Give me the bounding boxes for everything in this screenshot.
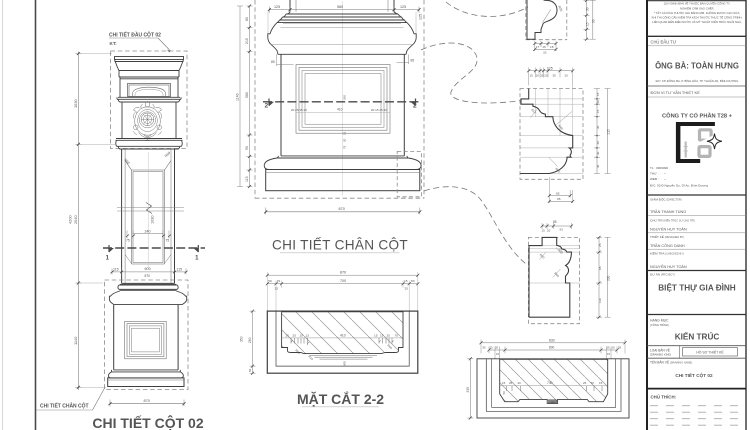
svg-text:50: 50 xyxy=(268,279,272,283)
svg-text:25: 25 xyxy=(583,381,587,385)
svg-text:4200: 4200 xyxy=(68,215,73,224)
svg-text:HẠNG MỤC: HẠNG MỤC xyxy=(650,319,669,323)
svg-text:85: 85 xyxy=(411,59,415,63)
svg-text:75: 75 xyxy=(166,239,170,243)
svg-text:20: 20 xyxy=(596,100,600,104)
svg-text:18: 18 xyxy=(550,45,554,49)
svg-text:115: 115 xyxy=(113,268,119,272)
svg-text:870: 870 xyxy=(340,270,346,274)
svg-text:THIẾT KẾ (DESIGNED BY): THIẾT KẾ (DESIGNED BY) xyxy=(650,234,684,239)
svg-text:1140: 1140 xyxy=(73,336,78,345)
svg-text:700: 700 xyxy=(340,279,346,283)
svg-text:125: 125 xyxy=(419,14,423,20)
svg-text:R60: R60 xyxy=(123,158,130,165)
svg-text:ÔNG BÀ: TOÀN HƯNG: ÔNG BÀ: TOÀN HƯNG xyxy=(655,62,739,71)
svg-text:50: 50 xyxy=(248,368,252,372)
svg-text:125: 125 xyxy=(274,5,280,9)
svg-text:80: 80 xyxy=(245,17,249,21)
svg-text:R60: R60 xyxy=(554,167,561,174)
svg-text:NGHIÊM CẤM SAO CHÉP,: NGHIÊM CẤM SAO CHÉP, xyxy=(680,5,714,10)
svg-text:CHỦ ĐẦU TƯ: CHỦ ĐẦU TƯ xyxy=(651,40,677,45)
svg-text:85: 85 xyxy=(271,60,275,64)
svg-text:870: 870 xyxy=(144,399,150,403)
svg-text:25: 25 xyxy=(275,287,279,291)
svg-text:TÊN BẢN VẼ (DRAWING NAME): TÊN BẢN VẼ (DRAWING NAME) xyxy=(650,360,692,365)
svg-text:THƯ :: THƯ : xyxy=(650,172,659,176)
svg-text:20: 20 xyxy=(612,346,616,350)
svg-text:20: 20 xyxy=(343,138,347,142)
svg-text:20: 20 xyxy=(547,229,551,233)
svg-text:KIỂM TRA (CHECKED BY): KIỂM TRA (CHECKED BY) xyxy=(650,251,684,256)
svg-text:15: 15 xyxy=(300,334,304,338)
svg-text:QUY ĐỊNH BẢN VẼ THUỘC BẢN QUYỀ: QUY ĐỊNH BẢN VẼ THUỘC BẢN QUYỀN CÔNG TY, xyxy=(664,1,731,6)
svg-text:30: 30 xyxy=(596,151,600,155)
svg-text:20 25 15 20: 20 25 15 20 xyxy=(291,108,307,112)
svg-text:215: 215 xyxy=(245,38,249,44)
svg-text:800: 800 xyxy=(549,346,555,350)
svg-text:1140: 1140 xyxy=(236,93,240,101)
svg-text:55: 55 xyxy=(483,346,487,350)
svg-text:15: 15 xyxy=(496,352,500,356)
svg-text:KIẾN TRÚC: KIẾN TRÚC xyxy=(675,331,720,342)
svg-text:25: 25 xyxy=(598,243,602,247)
svg-text:330: 330 xyxy=(466,387,470,393)
svg-text:75: 75 xyxy=(126,239,130,243)
svg-text:1: 1 xyxy=(106,255,110,262)
svg-text:580: 580 xyxy=(245,92,249,98)
svg-text:15: 15 xyxy=(540,74,544,78)
svg-text:13: 13 xyxy=(306,334,310,338)
svg-text:LIÊN QUAN ĐẾN ĐIỆN NƯỚC VÀ MỸ: LIÊN QUAN ĐẾN ĐIỆN NƯỚC VÀ MỸ THUẬT KIẾN… xyxy=(652,19,742,24)
svg-text:740: 740 xyxy=(547,381,553,385)
svg-text:ĐƠN VỊ TƯ VẤN THIẾT KẾ: ĐƠN VỊ TƯ VẤN THIẾT KẾ xyxy=(651,90,701,95)
svg-text:50: 50 xyxy=(502,391,506,395)
svg-text:32: 32 xyxy=(543,51,547,55)
svg-text:DỰ ÁN (PROJECT): DỰ ÁN (PROJECT) xyxy=(650,273,675,277)
svg-text:410: 410 xyxy=(340,333,346,337)
svg-text:65: 65 xyxy=(598,266,602,270)
svg-text:R35: R35 xyxy=(557,5,563,12)
svg-text:53: 53 xyxy=(560,228,564,232)
svg-text:20: 20 xyxy=(565,74,569,78)
svg-text:–: – xyxy=(664,177,666,181)
svg-text:20: 20 xyxy=(518,381,522,385)
svg-text:215: 215 xyxy=(606,129,610,135)
svg-text:15: 15 xyxy=(596,92,600,96)
svg-text:870: 870 xyxy=(339,207,345,211)
svg-text:WEB :: WEB : xyxy=(650,177,659,181)
svg-text:CHI TIẾT ĐẦU CỘT 02: CHI TIẾT ĐẦU CỘT 02 xyxy=(109,31,161,39)
svg-text:CHI TIẾT CỘT 02: CHI TIẾT CỘT 02 xyxy=(675,371,713,378)
svg-text:CHỦ TRÌ (KIẾN TRÚC SƯ CHỦ TRÌ): CHỦ TRÌ (KIẾN TRÚC SƯ CHỦ TRÌ) xyxy=(650,217,695,222)
svg-text:20: 20 xyxy=(536,74,540,78)
svg-text:15: 15 xyxy=(599,381,603,385)
svg-text:30: 30 xyxy=(585,7,589,11)
svg-text:20 15 25 20: 20 15 25 20 xyxy=(371,108,387,112)
svg-text:CHÚ THÍCH:: CHÚ THÍCH: xyxy=(651,395,677,400)
svg-text:35: 35 xyxy=(553,74,557,78)
svg-text:15: 15 xyxy=(502,381,506,385)
svg-text:200: 200 xyxy=(606,275,610,281)
svg-text:CHI TIẾT CHÂN CỘT: CHI TIẾT CHÂN CỘT xyxy=(40,402,89,410)
svg-text:70: 70 xyxy=(395,334,399,338)
svg-text:R17: R17 xyxy=(530,108,537,115)
svg-text:15: 15 xyxy=(596,109,600,113)
svg-text:350: 350 xyxy=(240,336,244,342)
svg-text:CÔNG TY CỔ PHẦN T28 +: CÔNG TY CỔ PHẦN T28 + xyxy=(662,112,733,120)
svg-text:15: 15 xyxy=(374,334,378,338)
svg-text:600: 600 xyxy=(343,361,347,366)
svg-text:40: 40 xyxy=(596,141,600,145)
svg-text:830: 830 xyxy=(549,338,555,342)
svg-text:R60: R60 xyxy=(553,271,560,278)
svg-text:–: – xyxy=(664,172,666,176)
svg-text:2040: 2040 xyxy=(73,215,78,224)
svg-text:580: 580 xyxy=(337,5,343,9)
svg-text:CHI TIẾT CỘT 02: CHI TIẾT CỘT 02 xyxy=(92,414,203,430)
svg-text:15: 15 xyxy=(542,229,546,233)
svg-text:15: 15 xyxy=(343,131,347,135)
svg-text:1030: 1030 xyxy=(151,216,155,224)
svg-text:125: 125 xyxy=(547,66,553,70)
svg-text:240: 240 xyxy=(145,230,151,234)
svg-text:15: 15 xyxy=(530,74,534,78)
svg-text:(CÔNG TRÌNH): (CÔNG TRÌNH) xyxy=(650,322,669,327)
svg-text:17: 17 xyxy=(536,45,540,49)
svg-text:25: 25 xyxy=(509,381,513,385)
svg-text:90: 90 xyxy=(245,146,249,150)
svg-text:LOẠI BẢN VẼ: LOẠI BẢN VẼ xyxy=(650,348,670,353)
svg-text:20: 20 xyxy=(490,346,494,350)
svg-text:25: 25 xyxy=(387,334,391,338)
svg-text:15: 15 xyxy=(607,352,611,356)
svg-text:15: 15 xyxy=(277,279,281,283)
svg-text:410: 410 xyxy=(337,108,343,112)
svg-text:125: 125 xyxy=(400,5,406,9)
svg-text:260: 260 xyxy=(343,95,347,100)
svg-text:55: 55 xyxy=(618,346,622,350)
svg-text:70: 70 xyxy=(591,381,595,385)
svg-text:85: 85 xyxy=(556,191,560,195)
svg-text:HỒ SƠ THIẾT KẾ: HỒ SƠ THIẾT KẾ xyxy=(696,350,724,355)
svg-text:CHI TIẾT CHÂN CỘT: CHI TIẾT CHÂN CỘT xyxy=(272,238,408,253)
svg-text:85: 85 xyxy=(553,220,557,224)
svg-text:20: 20 xyxy=(286,334,290,338)
svg-text:115: 115 xyxy=(245,176,249,182)
svg-text:15: 15 xyxy=(542,45,546,49)
svg-text:25: 25 xyxy=(405,287,409,291)
svg-text:608: 608 xyxy=(551,401,556,404)
svg-text:Đ/C: 50 Đ.Nguyễn Du, Dĩ An, Bì: Đ/C: 50 Đ.Nguyễn Du, Dĩ An, Bình Dương xyxy=(650,183,708,188)
svg-text:1030: 1030 xyxy=(73,99,78,108)
svg-text:95: 95 xyxy=(557,197,561,201)
svg-text:15: 15 xyxy=(380,334,384,338)
svg-text:30: 30 xyxy=(596,125,600,129)
svg-text:TL : 0909090: TL : 0909090 xyxy=(650,166,668,170)
svg-text:1: 1 xyxy=(195,255,199,262)
svg-text:BIỆT THỰ GIA ĐÌNH: BIỆT THỰ GIA ĐÌNH xyxy=(658,282,736,293)
svg-text:KT:: KT: xyxy=(110,41,118,46)
svg-text:90: 90 xyxy=(592,19,596,23)
svg-text:25: 25 xyxy=(607,346,611,350)
svg-text:25: 25 xyxy=(495,346,499,350)
svg-text:KHI THI CÔNG CẦN KIỂM TRA KÍCH: KHI THI CÔNG CẦN KIỂM TRA KÍCH THƯỚC THỰ… xyxy=(652,15,743,20)
svg-text:TRẦN CÔNG DANH: TRẦN CÔNG DANH xyxy=(650,243,685,248)
svg-text:(DRAWING KIND): (DRAWING KIND) xyxy=(650,353,671,357)
svg-text:15: 15 xyxy=(585,22,589,26)
svg-text:110: 110 xyxy=(598,298,602,303)
svg-text:Đ/C: KP. ĐÔNG BA, P. BÌNH HÒA,: Đ/C: KP. ĐÔNG BA, P. BÌNH HÒA, TP. THUẬN… xyxy=(656,78,739,83)
svg-text:50: 50 xyxy=(411,279,415,283)
svg-text:NGUYỄN HUY TOÀN: NGUYỄN HUY TOÀN xyxy=(650,264,687,269)
svg-text:NGUYỄN HUY TOÀN: NGUYỄN HUY TOÀN xyxy=(650,227,687,232)
svg-text:870: 870 xyxy=(145,274,151,278)
svg-text:TRẦN THANH TÙNG: TRẦN THANH TÙNG xyxy=(650,209,686,214)
svg-text:2: 2 xyxy=(265,103,269,110)
svg-text:75: 75 xyxy=(343,145,347,149)
svg-text:25: 25 xyxy=(293,334,297,338)
svg-text:* TẤT CẢ KÍCH THƯỚC GHI BẰNG M: * TẤT CẢ KÍCH THƯỚC GHI BẰNG MM, KHÔNG Đ… xyxy=(654,10,740,15)
svg-text:260: 260 xyxy=(248,337,252,343)
svg-text:20: 20 xyxy=(544,74,548,78)
svg-text:MẶT CẮT 2-2: MẶT CẮT 2-2 xyxy=(297,390,384,407)
svg-text:40: 40 xyxy=(596,164,600,168)
svg-text:115: 115 xyxy=(177,268,183,272)
svg-text:2: 2 xyxy=(413,103,417,110)
svg-text:R60: R60 xyxy=(164,151,171,158)
svg-text:600: 600 xyxy=(145,267,151,271)
svg-text:GIÁM ĐỐC (DIRECTOR): GIÁM ĐỐC (DIRECTOR) xyxy=(650,197,682,202)
svg-text:15: 15 xyxy=(404,279,408,283)
